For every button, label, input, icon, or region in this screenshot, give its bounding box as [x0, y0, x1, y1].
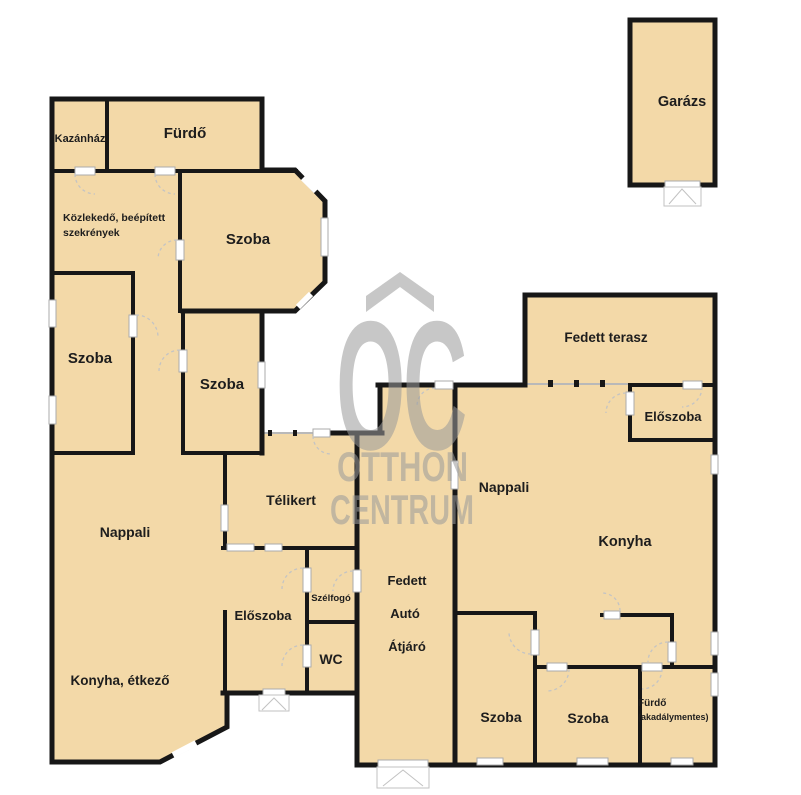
door-opening [604, 611, 620, 619]
terrace-column [548, 380, 553, 387]
door-opening [313, 429, 330, 437]
entrance-door-left-building [259, 695, 289, 711]
room-label-konyha-right: Konyha [598, 534, 652, 550]
window-opening [577, 758, 608, 765]
door-opening [626, 392, 634, 415]
room-label-fedett-auto-atjaro-line1: Fedett [388, 573, 428, 588]
room-label-fedett-auto-atjaro-line2: Autó [390, 606, 420, 621]
room-label-kozlekedo-line1: Közlekedő, beépített [63, 212, 166, 224]
watermark-otthon-centrum: OC OTTHON CENTRUM [330, 272, 474, 533]
door-opening [547, 663, 567, 671]
door-opening [179, 350, 187, 372]
window-opening [49, 300, 56, 327]
door-opening [155, 167, 175, 175]
window-opening [265, 544, 282, 551]
room-label-szoba-middle: Szoba [200, 376, 245, 393]
door-opening [129, 315, 137, 337]
floor-plan-page: Kazánház Fürdő Közlekedő, beépített szek… [0, 0, 801, 795]
glazing-tick [293, 430, 297, 436]
room-label-garazs: Garázs [658, 94, 706, 110]
room-label-szoba-left: Szoba [68, 350, 113, 367]
garage-door-mark [664, 187, 701, 206]
terrace-column [574, 380, 579, 387]
watermark-line-centrum: CENTRUM [330, 486, 474, 533]
terrace-column [600, 380, 605, 387]
window-opening [711, 632, 718, 655]
room-label-nappali-left: Nappali [100, 524, 151, 540]
watermark-line-otthon: OTTHON [337, 443, 468, 490]
window-opening [671, 758, 693, 765]
room-label-wc: WC [319, 651, 342, 667]
room-label-szelfogo: Szélfogó [311, 593, 351, 604]
window-opening [711, 673, 718, 696]
room-label-furdo-akadalymentes-line1: Fürdő [638, 698, 666, 709]
window-opening [258, 362, 265, 388]
room-label-telikert: Télikert [266, 492, 316, 508]
room-label-kazanhaz: Kazánház [55, 133, 106, 145]
door-opening [176, 240, 184, 260]
door-opening [642, 663, 662, 671]
room-label-furdo-top: Fürdő [164, 125, 207, 142]
glazing-tick [268, 430, 272, 436]
door-opening [303, 645, 311, 667]
door-opening [303, 568, 311, 592]
window-opening [321, 218, 328, 256]
window-opening [221, 505, 228, 531]
room-label-eloszoba-right: Előszoba [644, 409, 702, 424]
room-label-szoba-bottom-right: Szoba [567, 710, 608, 726]
door-opening [353, 570, 361, 592]
footprint-left-building-top [52, 99, 325, 455]
window-opening [227, 544, 254, 551]
room-label-fedett-auto-atjaro-line3: Átjáró [388, 639, 426, 654]
room-label-konyha-etkezo: Konyha, étkező [70, 673, 169, 688]
room-label-furdo-akadalymentes-line2: (akadálymentes) [638, 712, 709, 722]
window-opening [49, 396, 56, 424]
door-opening [683, 381, 702, 389]
door-opening [75, 167, 95, 175]
room-label-eloszoba-left: Előszoba [234, 608, 292, 623]
window-opening [711, 455, 718, 474]
room-label-fedett-terasz: Fedett terasz [564, 330, 648, 345]
door-opening [531, 630, 539, 655]
door-opening [668, 642, 676, 662]
room-label-szoba-bottom-left: Szoba [480, 709, 521, 725]
window-opening [477, 758, 503, 765]
room-label-kozlekedo-line2: szekrények [63, 227, 120, 239]
room-label-szoba-bay: Szoba [226, 231, 271, 248]
room-label-nappali-right: Nappali [479, 479, 530, 495]
floor-plan-canvas: Kazánház Fürdő Közlekedő, beépített szek… [0, 0, 801, 795]
footprint-left-building-bottom [52, 690, 227, 762]
carport-passage-mark [377, 767, 429, 788]
